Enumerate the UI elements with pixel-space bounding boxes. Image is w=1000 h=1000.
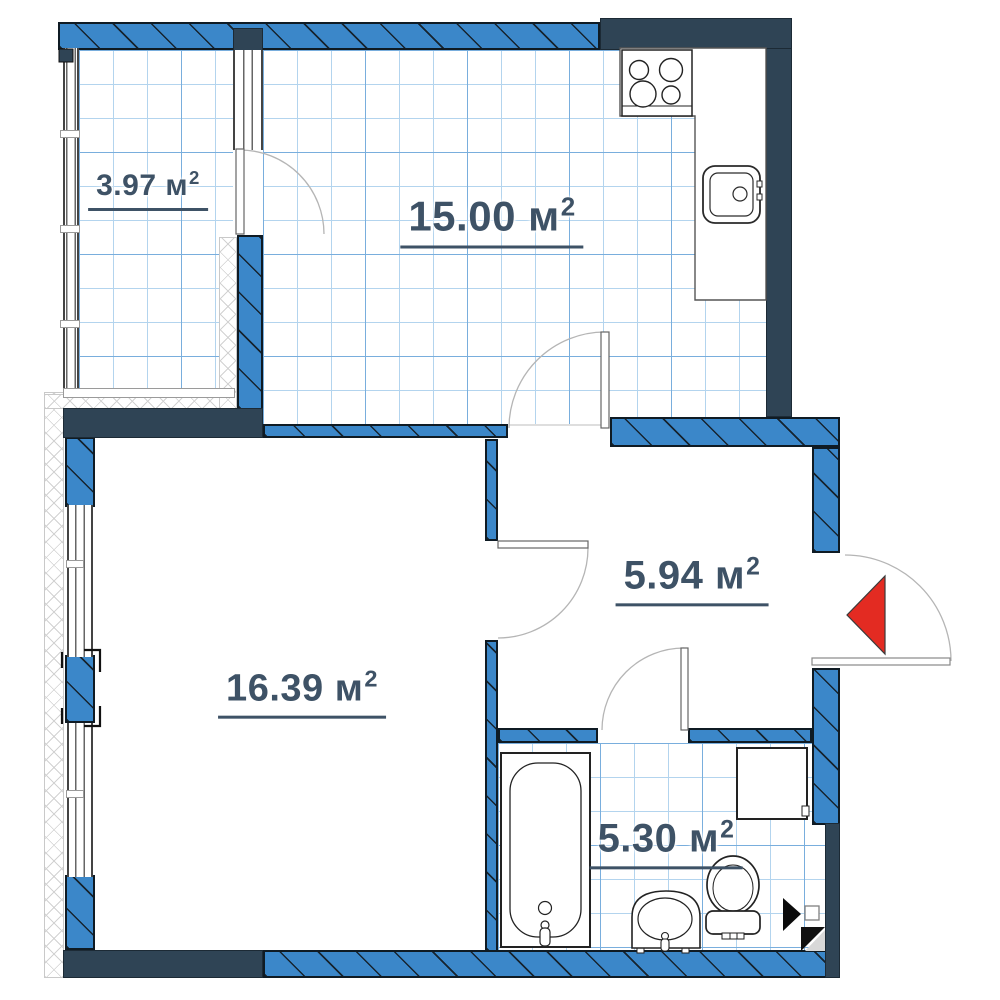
door-arc-bathroom [602, 648, 684, 730]
room-area-label-living-room: 16.39 м2 [218, 666, 386, 719]
wall-navy-top-right [600, 18, 792, 50]
area-value: 16.39 [226, 667, 324, 709]
door-arc-living [498, 548, 588, 638]
wall-hallway-top [610, 417, 840, 447]
wall-entry-right-upper [812, 447, 840, 553]
wall-pier-left-3 [65, 875, 95, 950]
room-area-label-kitchen: 15.00 м2 [400, 192, 583, 249]
balcony-parapet [63, 388, 235, 398]
wall-pier-left-1 [65, 437, 95, 507]
wall-navy-bottom-left [63, 950, 263, 978]
wall-navy-right [766, 48, 792, 417]
area-superscript: 2 [746, 553, 760, 580]
insulation-divider-strip [219, 237, 237, 409]
area-value: 3.97 [96, 169, 156, 202]
wall-bathroom-top-left [498, 728, 598, 743]
door-leaf-balcony [236, 149, 244, 234]
room-area-label-bathroom: 5.30 м2 [590, 816, 743, 869]
glazing-joint [60, 225, 80, 233]
room-area-label-balcony: 3.97 м2 [88, 167, 208, 211]
area-superscript: 2 [364, 666, 378, 692]
window-joint [66, 560, 84, 568]
glazing-joint [60, 320, 80, 328]
floor-plan: 3.97 м2 15.00 м2 5.94 м2 16.39 м2 5.30 м… [0, 0, 1000, 1000]
entrance-arrow-icon [847, 576, 885, 654]
door-leaf-entrance [812, 658, 950, 665]
door-leaf-living [498, 541, 588, 548]
wall-pier-left-2 [65, 655, 95, 723]
wall-living-right-lower [485, 640, 498, 952]
room-area-label-hallway: 5.94 м2 [616, 553, 769, 606]
wall-navy-under-balcony [63, 408, 263, 438]
door-arc-entrance [845, 555, 951, 661]
area-unit: м [335, 667, 364, 709]
area-unit: м [528, 193, 560, 240]
wall-balcony-divider [237, 235, 263, 410]
area-unit: м [165, 169, 188, 202]
door-leaf-bathroom [681, 648, 688, 730]
area-unit: м [715, 554, 745, 598]
window-balcony-glazing [63, 48, 79, 392]
window-joint [66, 790, 84, 798]
area-value: 5.94 [624, 554, 704, 598]
area-value: 15.00 [408, 193, 516, 240]
area-unit: м [689, 817, 719, 861]
window-living-2 [67, 723, 93, 877]
glazing-joint [60, 130, 80, 138]
wall-navy-bath-right [825, 823, 840, 978]
window-living-1 [67, 505, 93, 657]
wall-entry-right-lower [812, 668, 840, 825]
area-superscript: 2 [189, 167, 200, 188]
wall-top [58, 22, 600, 50]
area-superscript: 2 [720, 816, 734, 843]
window-balcony-kitchen [233, 50, 263, 150]
wall-bathroom-top-right [688, 728, 812, 743]
floor-balcony [79, 50, 233, 388]
wall-kitchen-bottom [263, 424, 508, 438]
area-value: 5.30 [598, 817, 678, 861]
area-superscript: 2 [561, 192, 576, 222]
wall-living-right-upper [485, 439, 498, 541]
insulation-left-strip [44, 392, 64, 978]
wall-bottom [263, 950, 828, 978]
